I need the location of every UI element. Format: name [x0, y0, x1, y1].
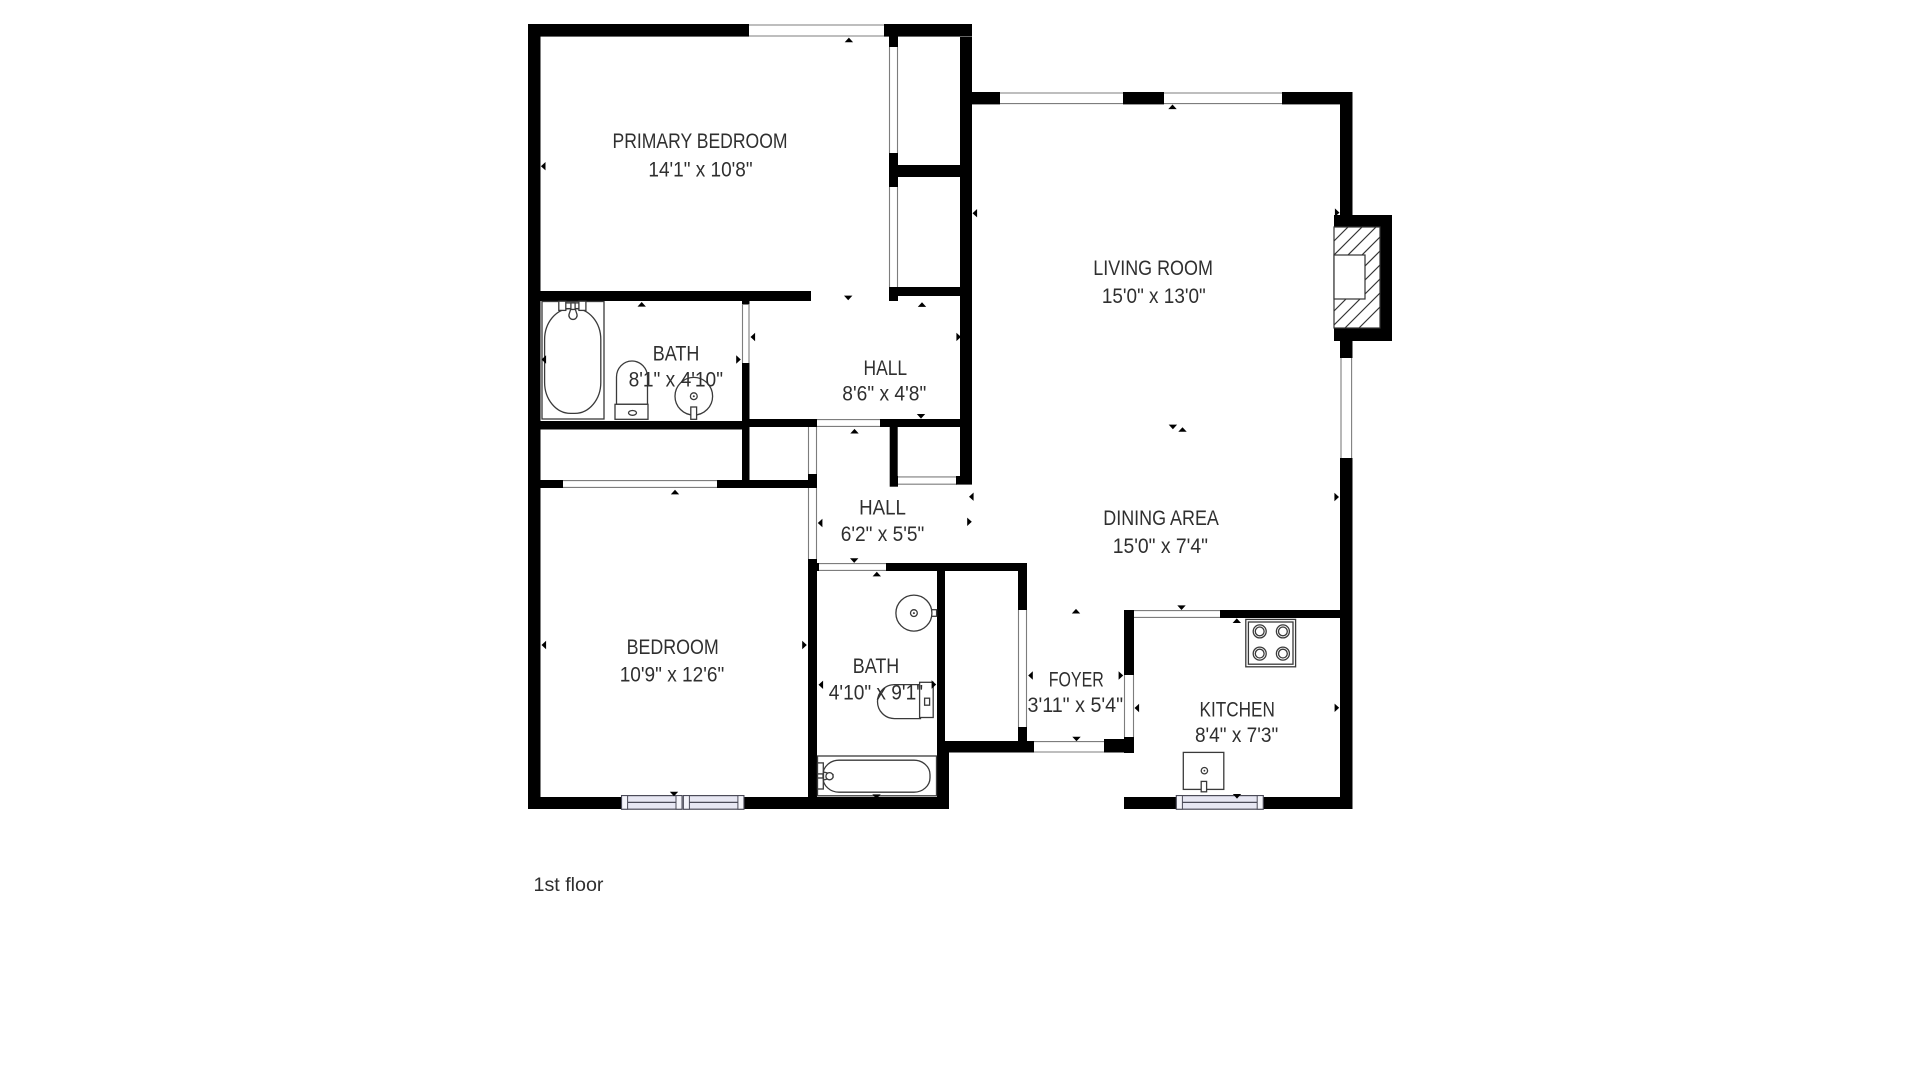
svg-text:15'0" x 7'4": 15'0" x 7'4" [1113, 535, 1208, 558]
svg-text:HALL: HALL [864, 357, 908, 380]
svg-text:15'0" x 13'0": 15'0" x 13'0" [1102, 285, 1206, 308]
svg-text:8'6" x 4'8": 8'6" x 4'8" [842, 382, 926, 405]
svg-text:8'1" x 4'10": 8'1" x 4'10" [629, 368, 723, 391]
svg-text:PRIMARY BEDROOM: PRIMARY BEDROOM [613, 130, 788, 153]
svg-text:1st floor: 1st floor [534, 874, 604, 896]
svg-text:LIVING ROOM: LIVING ROOM [1093, 257, 1213, 280]
svg-text:BEDROOM: BEDROOM [627, 636, 719, 659]
svg-text:FOYER: FOYER [1049, 668, 1104, 691]
svg-text:DINING AREA: DINING AREA [1103, 507, 1219, 530]
svg-text:10'9" x 12'6": 10'9" x 12'6" [620, 664, 725, 687]
svg-text:3'11" x 5'4": 3'11" x 5'4" [1028, 694, 1124, 717]
svg-text:BATH: BATH [853, 655, 899, 678]
svg-text:14'1" x 10'8": 14'1" x 10'8" [648, 159, 752, 182]
svg-text:HALL: HALL [859, 497, 906, 520]
svg-text:BATH: BATH [653, 342, 700, 365]
svg-text:6'2" x 5'5": 6'2" x 5'5" [841, 523, 925, 546]
svg-text:KITCHEN: KITCHEN [1200, 699, 1275, 722]
svg-text:4'10" x 9'1": 4'10" x 9'1" [829, 681, 923, 704]
svg-text:8'4" x 7'3": 8'4" x 7'3" [1195, 724, 1278, 747]
